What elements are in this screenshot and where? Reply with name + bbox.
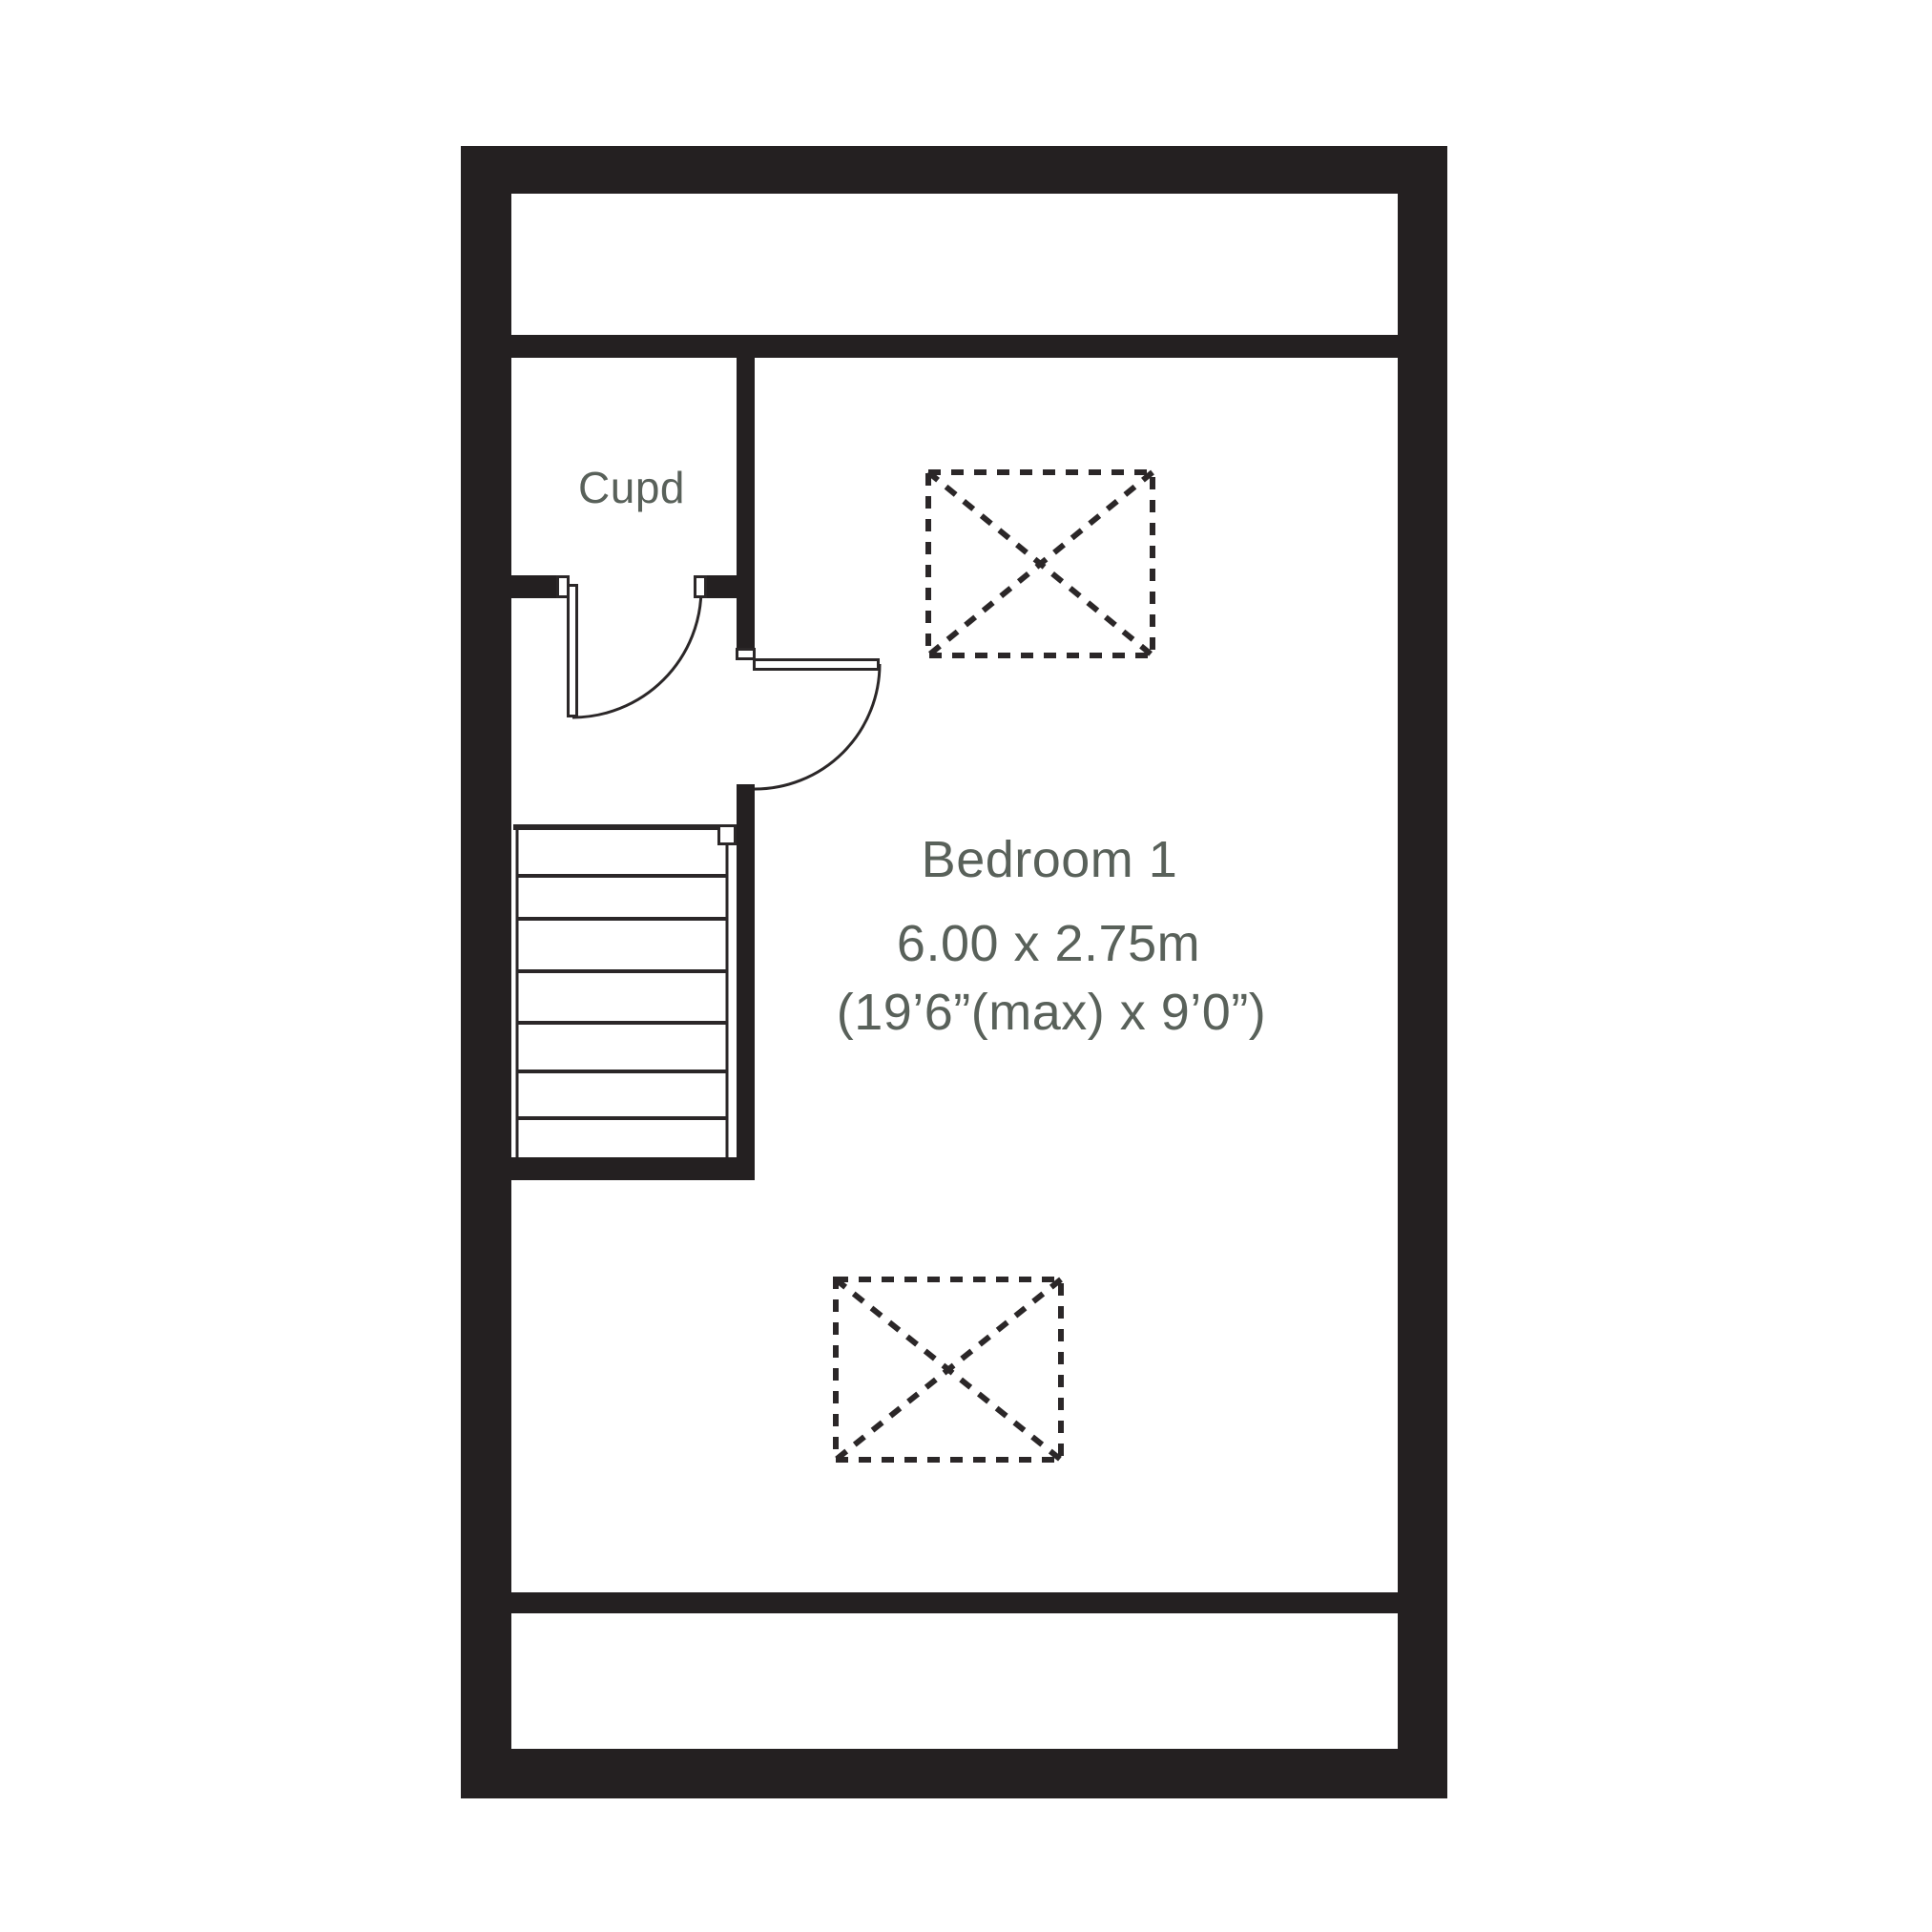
roof-window-symbol-lower [836, 1279, 1061, 1460]
floor-plan: Cupd Bedroom 1 6.00 x 2.75m (19’6”(max) … [0, 0, 1932, 1932]
bedroom-door-swing-arc [755, 664, 880, 789]
staircase [513, 827, 729, 1157]
bedroom-door-leaf [753, 658, 880, 671]
cupboard-door-swing-arc [572, 589, 701, 717]
cupboard-door-jamb-right [694, 575, 707, 598]
bedroom-label: Bedroom 1 [922, 830, 1178, 889]
stair-top-jamb [717, 824, 737, 845]
cupboard-label: Cupd [578, 462, 685, 513]
roof-window-symbol-upper [928, 472, 1153, 655]
bedroom-dimensions-imperial: (19’6”(max) x 9’0”) [837, 983, 1267, 1042]
bedroom-dimensions-metric: 6.00 x 2.75m [897, 914, 1200, 973]
cupboard-door-leaf [567, 584, 578, 717]
